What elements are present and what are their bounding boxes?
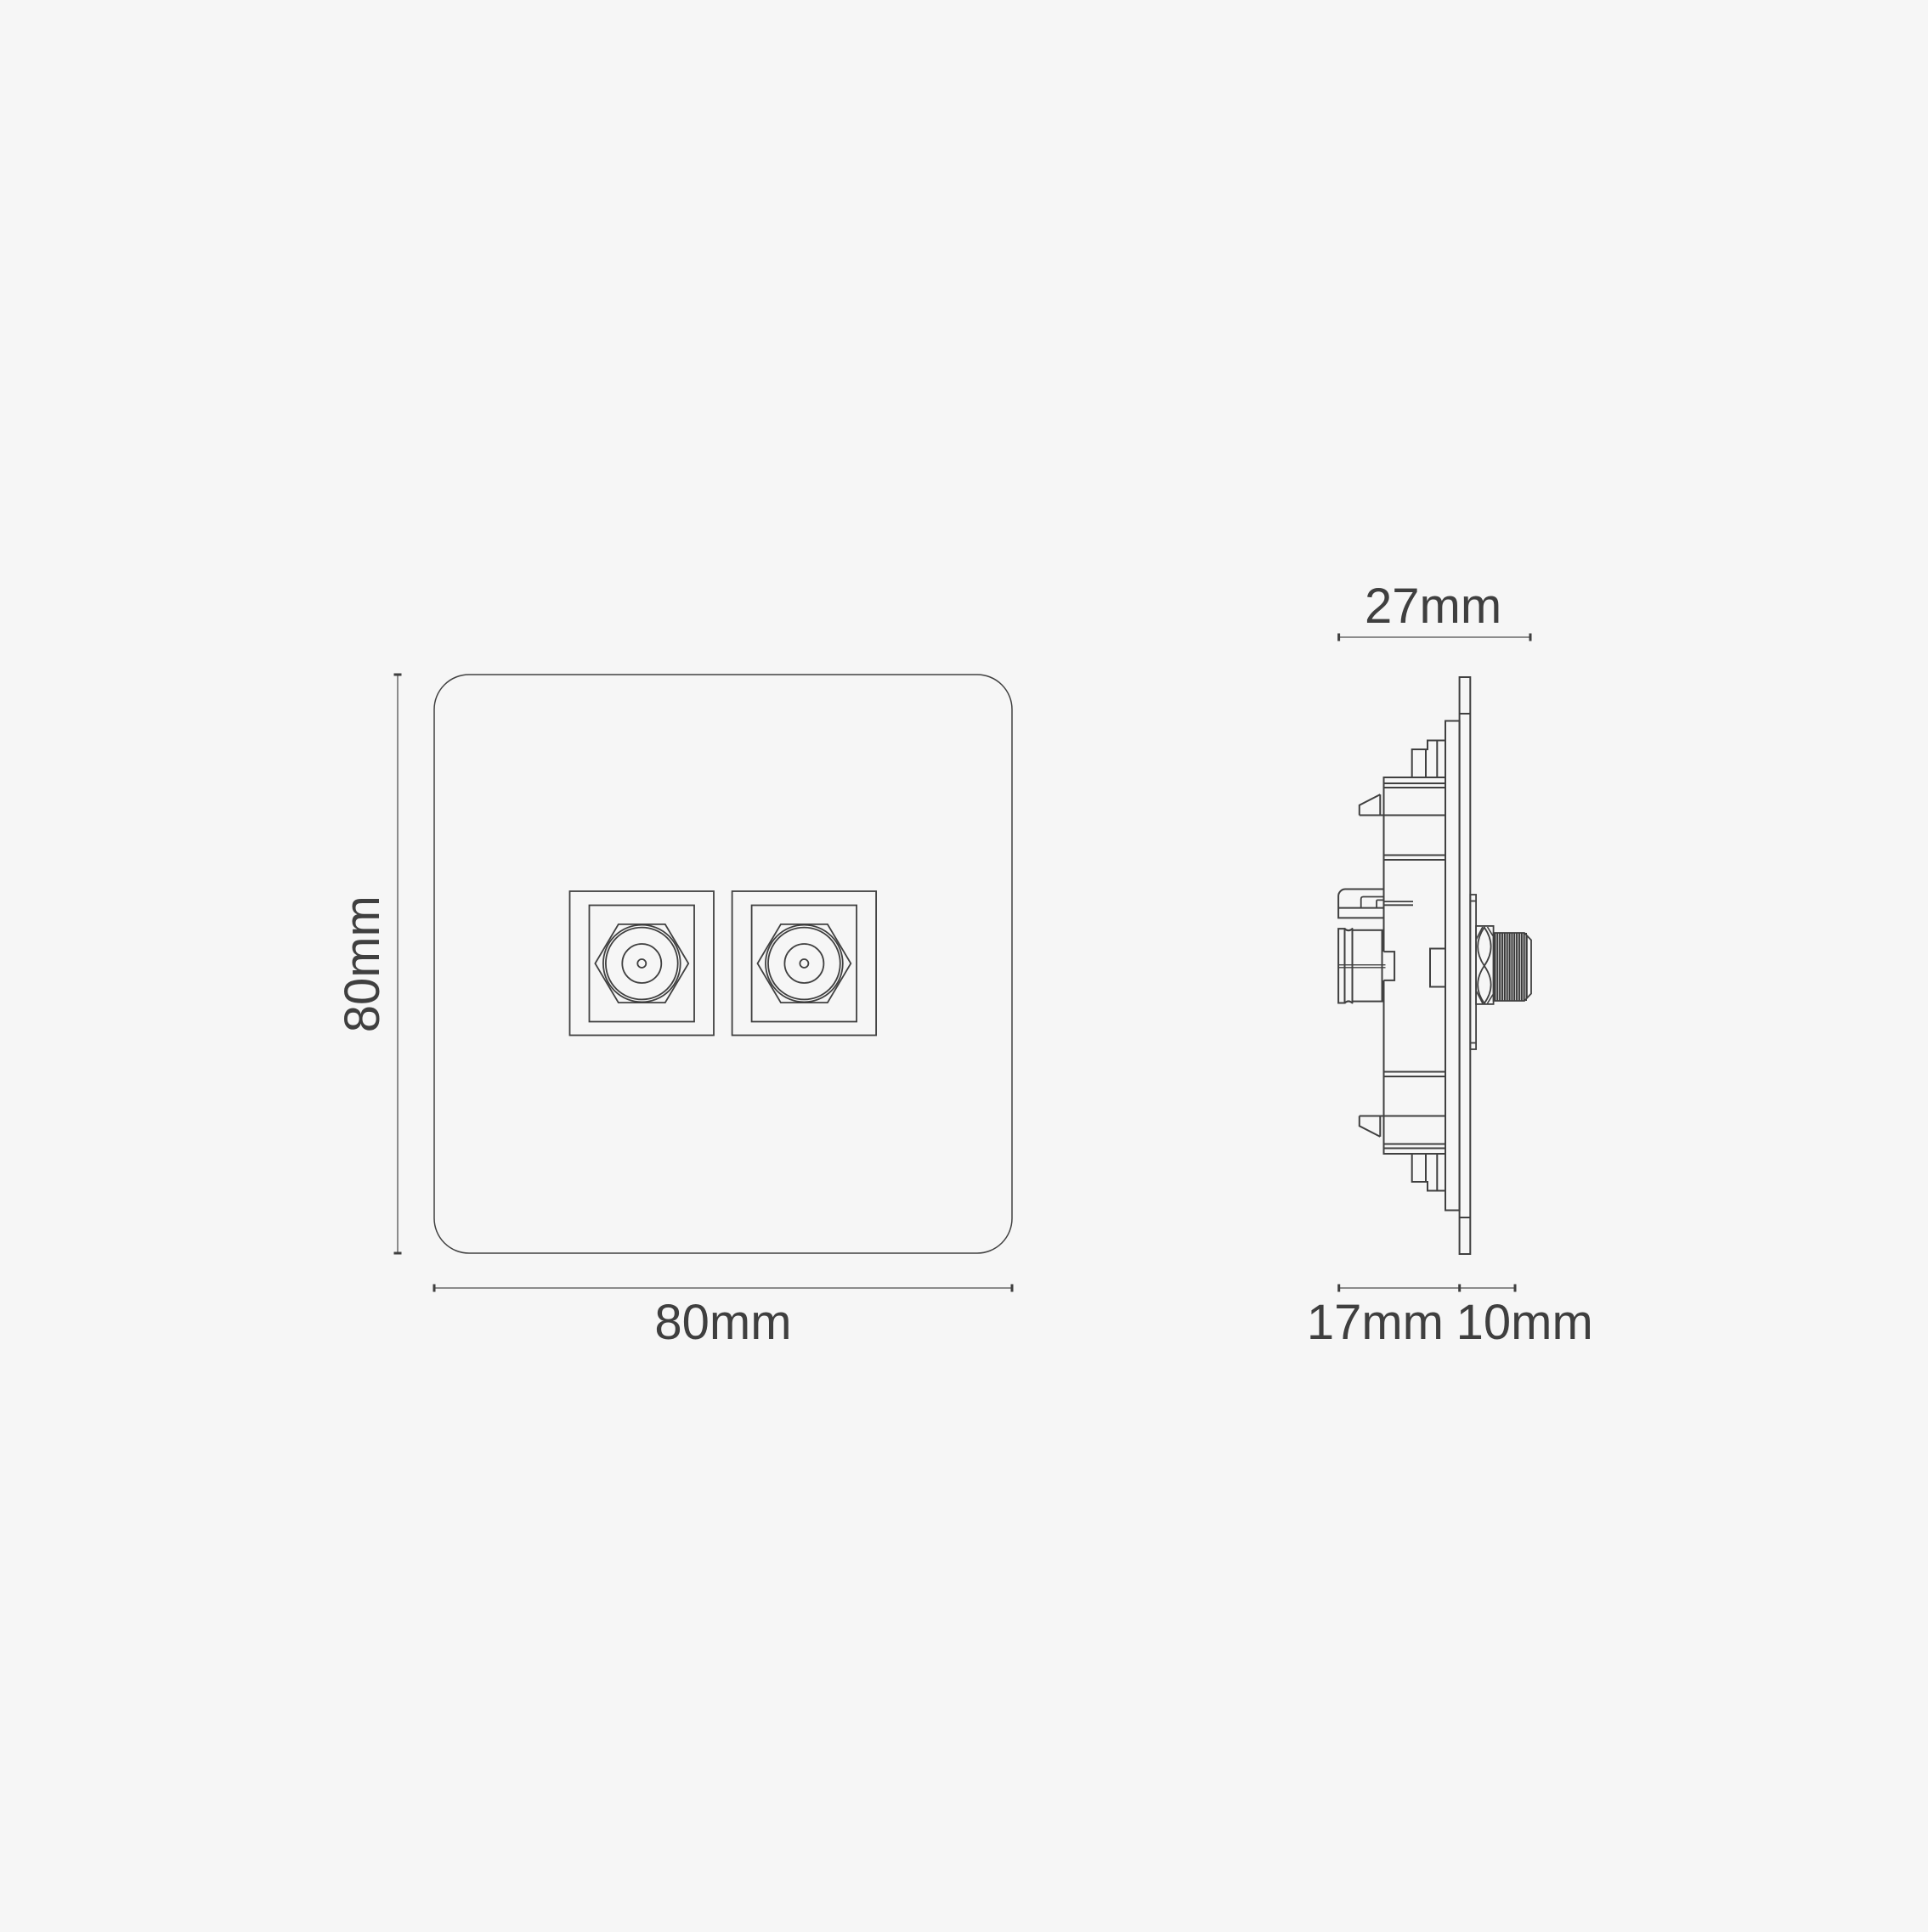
svg-text:10mm: 10mm	[1456, 1295, 1593, 1350]
svg-text:27mm: 27mm	[1365, 579, 1501, 634]
svg-text:17mm: 17mm	[1307, 1295, 1444, 1350]
svg-text:80mm: 80mm	[335, 895, 390, 1032]
svg-text:80mm: 80mm	[654, 1295, 791, 1350]
